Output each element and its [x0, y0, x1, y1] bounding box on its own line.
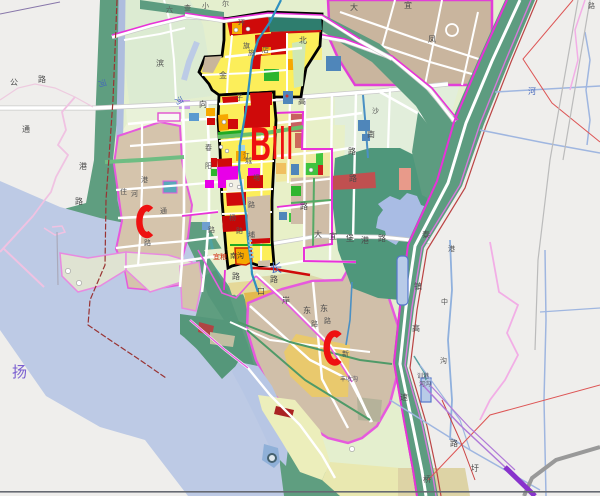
svg-text:速: 速 — [400, 393, 408, 402]
svg-text:港: 港 — [448, 244, 455, 253]
svg-text:旗: 旗 — [243, 41, 250, 50]
svg-text:路: 路 — [270, 274, 278, 284]
svg-text:镇: 镇 — [414, 281, 422, 291]
svg-text:路: 路 — [324, 316, 331, 325]
svg-text:向: 向 — [199, 99, 207, 109]
svg-text:南: 南 — [367, 129, 375, 139]
svg-text:高: 高 — [298, 96, 306, 106]
svg-text:沙: 沙 — [372, 107, 379, 115]
svg-text:桥: 桥 — [423, 474, 431, 484]
svg-text:滨: 滨 — [156, 58, 164, 68]
svg-text:公: 公 — [10, 78, 18, 87]
svg-text:训港: 训港 — [417, 372, 429, 380]
svg-text:河: 河 — [528, 86, 536, 96]
svg-text:口: 口 — [257, 287, 265, 296]
svg-text:沟: 沟 — [440, 356, 447, 365]
svg-text:金: 金 — [219, 70, 227, 80]
svg-text:港: 港 — [361, 235, 369, 245]
svg-text:住: 住 — [120, 187, 127, 196]
svg-text:路: 路 — [248, 200, 255, 209]
svg-text:杨: 杨 — [229, 213, 236, 222]
svg-text:环: 环 — [238, 19, 245, 27]
svg-text:南沟: 南沟 — [230, 251, 244, 260]
svg-text:路: 路 — [588, 1, 595, 10]
svg-text:路: 路 — [208, 225, 215, 234]
svg-text:子: 子 — [236, 94, 243, 102]
svg-text:通: 通 — [160, 206, 167, 215]
svg-text:埸: 埸 — [253, 173, 260, 182]
svg-text:路: 路 — [236, 226, 243, 235]
svg-text:尔: 尔 — [222, 0, 229, 8]
svg-text:春: 春 — [205, 143, 212, 152]
svg-text:查: 查 — [184, 3, 191, 12]
svg-text:新: 新 — [342, 349, 349, 358]
svg-text:路: 路 — [75, 196, 83, 206]
svg-text:小: 小 — [202, 1, 209, 10]
svg-text:港: 港 — [141, 175, 148, 184]
svg-text:扬: 扬 — [12, 364, 27, 381]
svg-text:埔: 埔 — [248, 230, 255, 239]
svg-text:店: 店 — [262, 45, 269, 54]
svg-text:路: 路 — [144, 238, 151, 247]
svg-text:宜粮: 宜粮 — [213, 252, 227, 261]
svg-text:路: 路 — [232, 271, 240, 281]
svg-text:凤: 凤 — [428, 35, 436, 44]
svg-text:施: 施 — [248, 48, 255, 57]
svg-text:宜: 宜 — [404, 0, 412, 10]
svg-text:城: 城 — [245, 157, 252, 165]
svg-text:路: 路 — [300, 201, 308, 211]
svg-text:大: 大 — [314, 229, 322, 239]
svg-text:高: 高 — [412, 323, 420, 333]
svg-text:大: 大 — [350, 2, 358, 12]
svg-text:通: 通 — [22, 124, 30, 134]
svg-text:堡: 堡 — [346, 233, 354, 243]
svg-text:东: 东 — [303, 305, 311, 315]
svg-text:宜: 宜 — [329, 231, 337, 241]
svg-text:路: 路 — [348, 146, 356, 156]
svg-text:路: 路 — [38, 74, 46, 84]
svg-text:岸: 岸 — [282, 296, 290, 305]
svg-text:港: 港 — [79, 161, 87, 171]
svg-text:河沟: 河沟 — [419, 380, 431, 388]
svg-text:路: 路 — [349, 173, 357, 183]
svg-text:阳: 阳 — [205, 161, 212, 170]
svg-text:中: 中 — [441, 297, 448, 306]
svg-text:路: 路 — [378, 233, 386, 243]
svg-text:东: 东 — [320, 303, 328, 313]
svg-text:北: 北 — [299, 36, 307, 45]
svg-text:B: B — [250, 119, 271, 171]
svg-text:河: 河 — [131, 190, 138, 198]
svg-text:泰: 泰 — [422, 229, 430, 239]
svg-text:路: 路 — [450, 438, 458, 448]
svg-text:长: 长 — [270, 261, 282, 275]
svg-text:路: 路 — [311, 319, 318, 328]
svg-text:丰收沟: 丰收沟 — [340, 375, 358, 383]
svg-text:六: 六 — [166, 5, 173, 14]
svg-text:圩: 圩 — [471, 464, 479, 473]
